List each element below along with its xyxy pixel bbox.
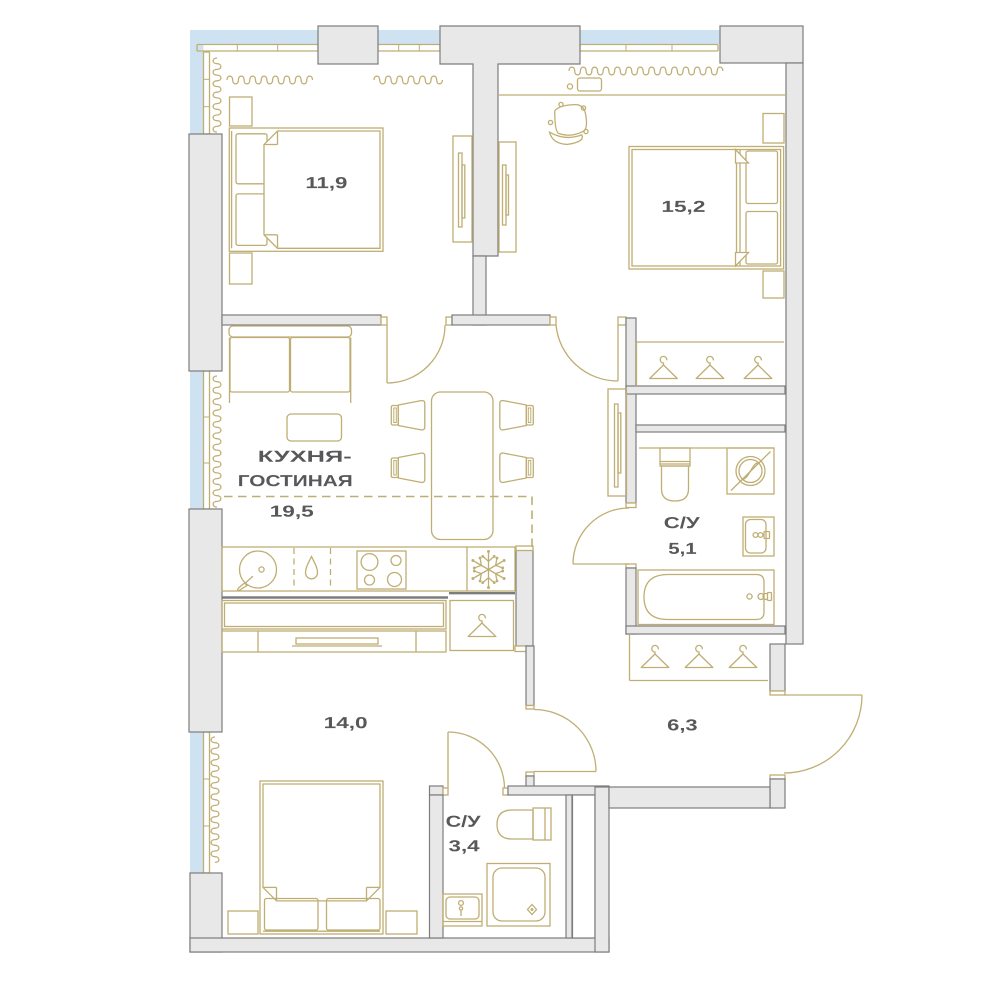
svg-text:11,9: 11,9 <box>305 175 347 192</box>
svg-text:КУХНЯ-: КУХНЯ- <box>258 449 352 466</box>
svg-text:С/У: С/У <box>446 814 482 831</box>
svg-text:19,5: 19,5 <box>270 504 314 521</box>
svg-text:14,0: 14,0 <box>324 715 368 732</box>
svg-text:6,3: 6,3 <box>667 717 698 734</box>
svg-text:3,4: 3,4 <box>449 838 480 855</box>
svg-text:5,1: 5,1 <box>668 541 697 558</box>
svg-text:С/У: С/У <box>664 515 701 532</box>
svg-text:15,2: 15,2 <box>661 199 705 216</box>
svg-text:ГОСТИНАЯ: ГОСТИНАЯ <box>238 473 353 490</box>
